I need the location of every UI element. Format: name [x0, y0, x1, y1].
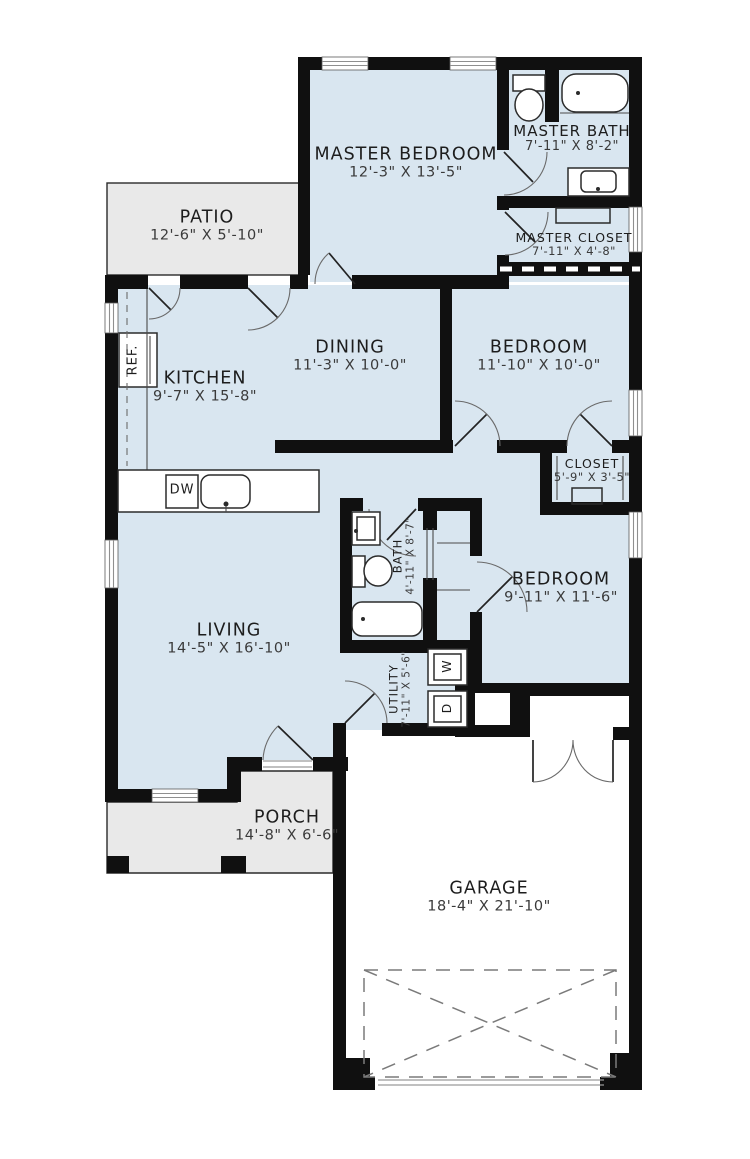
master-bathtub — [562, 74, 628, 112]
front-door-sill — [263, 761, 312, 767]
garage-door-line — [378, 1080, 604, 1085]
washer-label: W — [440, 659, 454, 672]
bath-toilet-bowl — [364, 556, 392, 586]
room-label-bath: BATH4'-11" X 8'-7" — [391, 517, 416, 594]
room-label-master-bath: MASTER BATH7'-11" X 8'-2" — [513, 123, 630, 155]
room-label-garage: GARAGE18'-4" X 21'-10" — [427, 879, 551, 916]
refrigerator-label: REF. — [127, 345, 142, 376]
room-label-porch: PORCH14'-8" X 6'-6" — [235, 808, 339, 845]
kitchen-counter — [118, 470, 319, 512]
porch-post — [221, 856, 246, 873]
garage-markings — [364, 970, 616, 1085]
dishwasher-label: DW — [170, 484, 195, 499]
room-label-dining: DINING11'-3" X 10'-0" — [293, 338, 407, 375]
garage-door-clearance — [364, 970, 616, 1077]
bath-toilet-tank — [352, 556, 365, 587]
room-label-patio: PATIO12'-6" X 5'-10" — [150, 208, 264, 245]
room-label-kitchen: KITCHEN9'-7" X 15'-8" — [153, 369, 257, 406]
room-label-utility: UTILITY7'-11" X 5'-6" — [387, 650, 412, 727]
room-label-closet: CLOSET5'-9" X 3'-5" — [554, 457, 630, 485]
room-label-living: LIVING14'-5" X 16'-10" — [167, 621, 291, 658]
room-label-master-closet: MASTER CLOSET7'-11" X 4'-8" — [515, 231, 632, 259]
room-label-master-bedroom: MASTER BEDROOM12'-3" X 13'-5" — [315, 145, 498, 182]
dryer-label: D — [440, 703, 454, 714]
master-toilet-bowl — [515, 89, 543, 121]
porch-post — [107, 856, 129, 873]
garage-niche — [475, 693, 510, 725]
floor-plan: MASTER BEDROOM12'-3" X 13'-5" MASTER BAT… — [0, 0, 750, 1159]
room-label-bedroom-2: BEDROOM11'-10" X 10'-0" — [477, 338, 601, 375]
room-label-bedroom-3: BEDROOM9'-11" X 11'-6" — [504, 570, 618, 607]
